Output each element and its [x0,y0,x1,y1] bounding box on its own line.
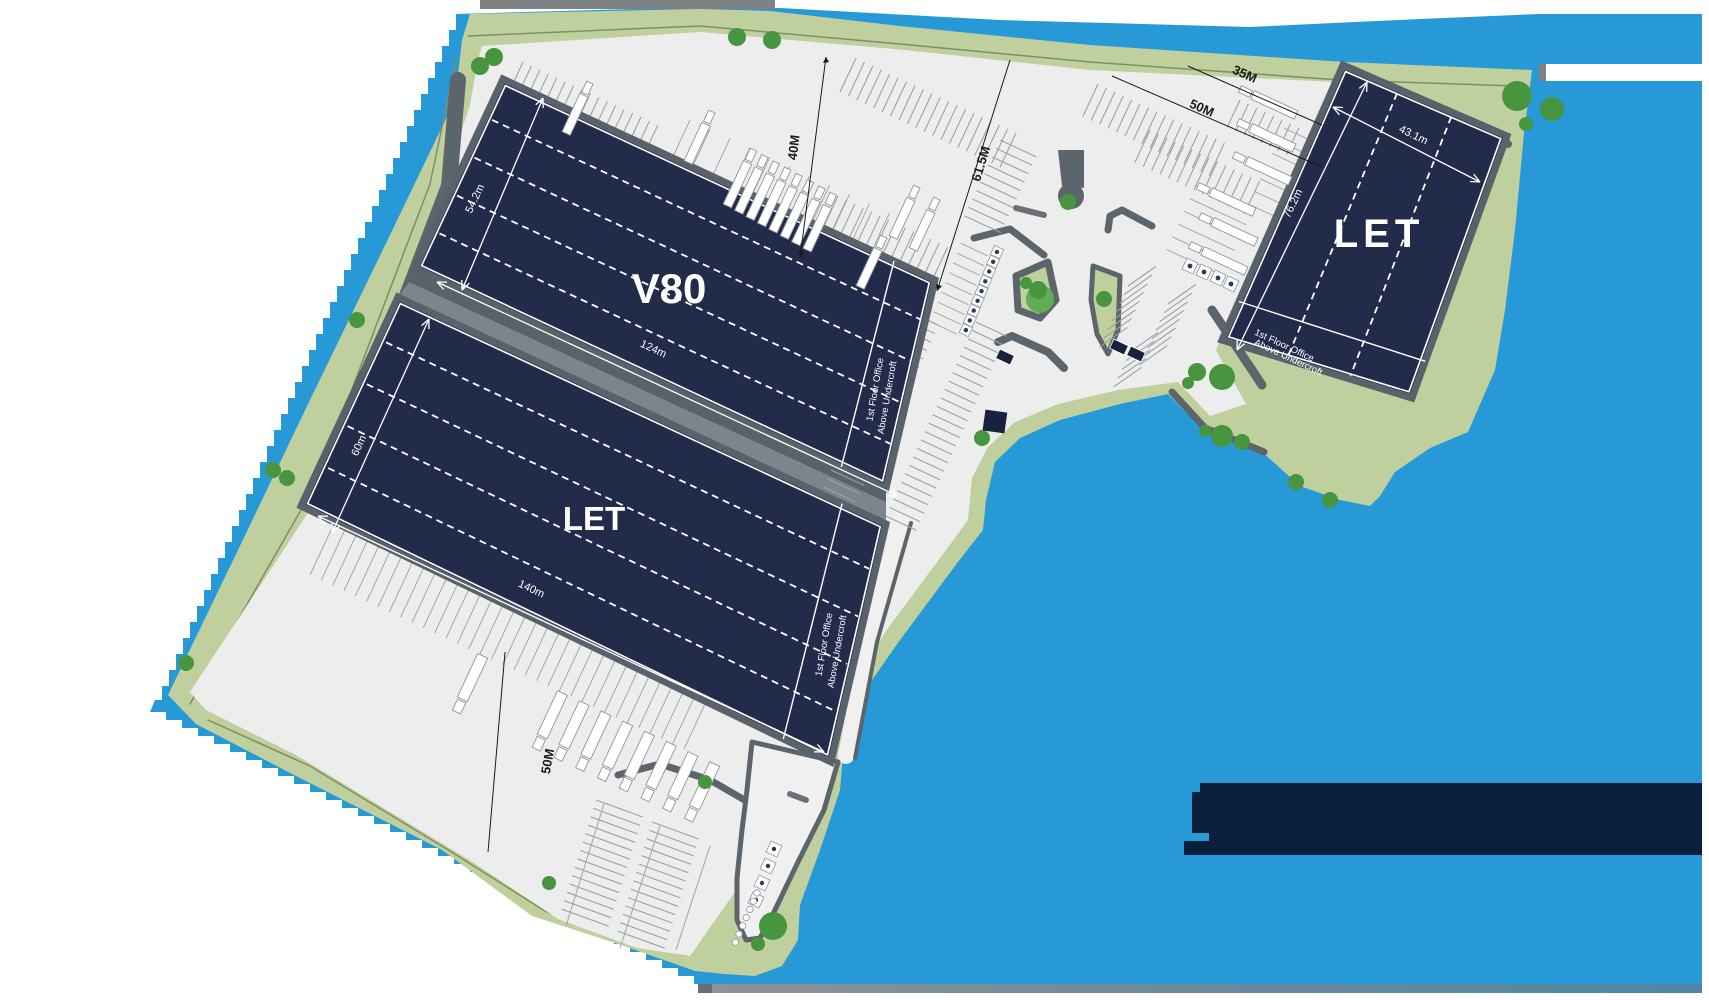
svg-text:V80: V80 [632,265,707,312]
svg-text:LET: LET [563,500,625,537]
svg-text:40M: 40M [785,134,803,161]
svg-text:LET: LET [1334,212,1425,256]
